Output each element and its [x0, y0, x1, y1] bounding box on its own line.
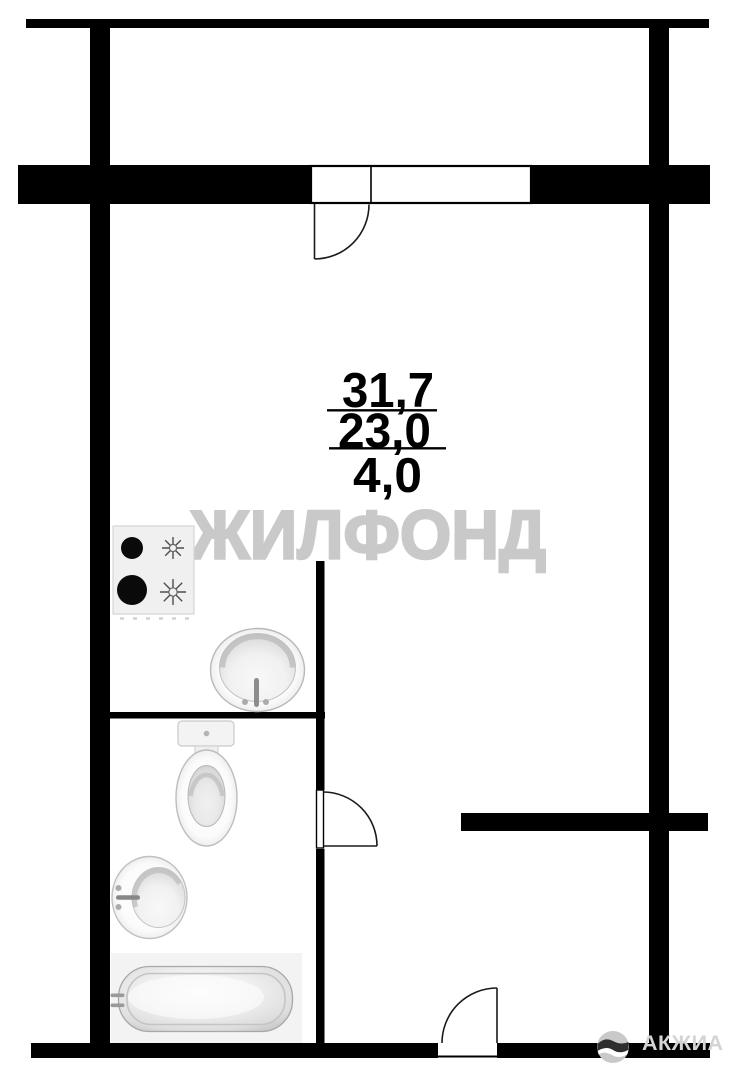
svg-text:ЖИЛФОНД: ЖИЛФОНД — [189, 497, 546, 574]
svg-text:АКЖИА: АКЖИА — [642, 1031, 724, 1055]
svg-text:4,0: 4,0 — [353, 449, 422, 503]
